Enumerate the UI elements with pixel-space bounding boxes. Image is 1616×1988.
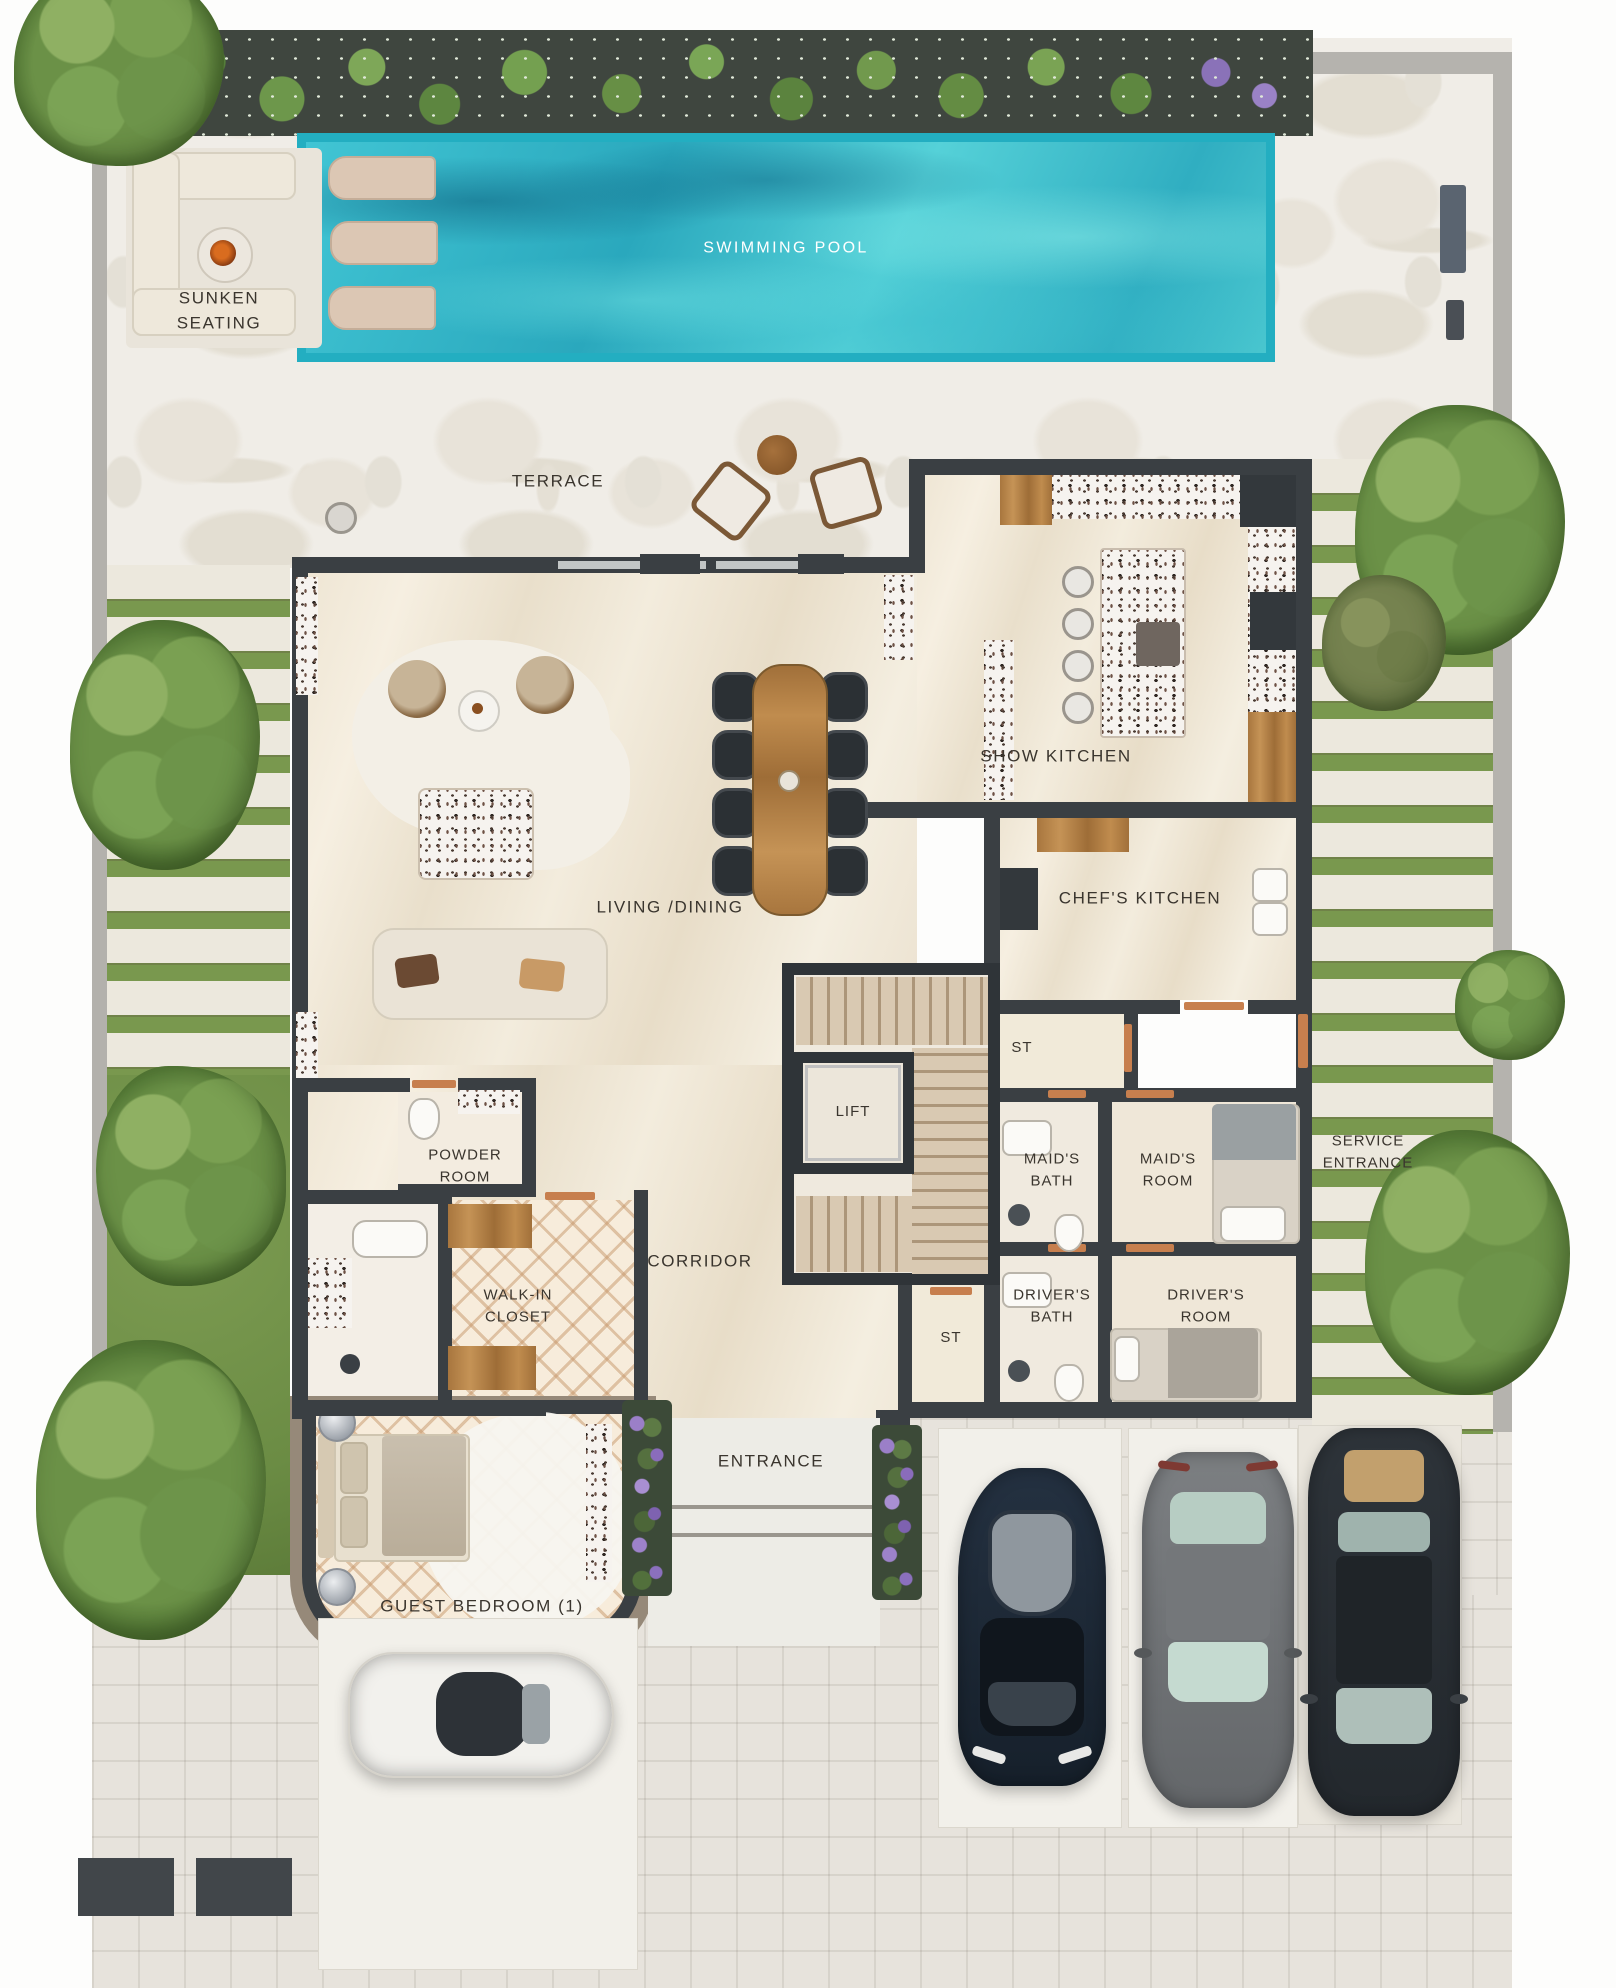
- bar-stool: [1062, 608, 1094, 640]
- door-post: [798, 554, 844, 574]
- outdoor-shower: [1440, 185, 1466, 273]
- maids-bed-blanket: [1212, 1104, 1296, 1160]
- car-windshield: [1336, 1688, 1432, 1744]
- entrance-step: [660, 1505, 872, 1509]
- label-storage-1: ST: [1011, 1037, 1032, 1059]
- car-roof: [1166, 1546, 1270, 1640]
- pool-lounger: [328, 156, 436, 200]
- label-sunken-seating: SUNKEN SEATING: [159, 286, 279, 335]
- kitchen-cabinet-wood: [1248, 712, 1296, 802]
- wall-panel-marble: [984, 640, 1014, 800]
- pool-lounger: [330, 221, 438, 265]
- maids-bath-shower: [1008, 1204, 1030, 1226]
- label-walk-in-closet: WALK-IN CLOSET: [468, 1284, 568, 1328]
- guest-bed-pillow: [340, 1496, 368, 1548]
- guest-bed-pillow: [340, 1442, 368, 1494]
- paver-mat: [78, 1858, 174, 1916]
- st1-door: [1124, 1024, 1132, 1072]
- car-headlight: [971, 1745, 1006, 1765]
- drivers-bed-blanket: [1168, 1328, 1258, 1398]
- fire-pit-flame: [210, 240, 236, 266]
- kitchen-top-cabinet-wood: [1000, 475, 1052, 525]
- outdoor-bench: [1446, 300, 1464, 340]
- label-drivers-room: DRIVER'S ROOM: [1156, 1284, 1256, 1328]
- label-powder-room: POWDER ROOM: [415, 1144, 515, 1188]
- car-sunroof-tan: [1344, 1450, 1424, 1502]
- bar-stool: [1062, 692, 1094, 724]
- car-windshield: [988, 1682, 1076, 1726]
- guest-bath-tub: [352, 1220, 428, 1258]
- bar-stool: [1062, 566, 1094, 598]
- wall-right: [1296, 459, 1312, 1418]
- tree: [1455, 950, 1565, 1060]
- label-lift: LIFT: [836, 1101, 871, 1123]
- entrance-step: [660, 1533, 872, 1537]
- car-dark: [1308, 1428, 1460, 1816]
- label-maids-room: MAID'S ROOM: [1123, 1148, 1213, 1192]
- drivers-bed-pillow: [1114, 1336, 1140, 1382]
- sofa-pillow: [394, 953, 440, 989]
- coffee-table-marble: [418, 788, 534, 880]
- maids-bench: [1220, 1206, 1286, 1242]
- wall-powder-right: [522, 1078, 536, 1197]
- wall-kitchen-top: [909, 459, 1312, 475]
- chef-door: [1184, 1002, 1244, 1010]
- label-swimming-pool: SWIMMING POOL: [703, 236, 868, 259]
- car-mirror: [1450, 1694, 1468, 1704]
- powder-door: [412, 1080, 456, 1088]
- label-show-kitchen: SHOW KITCHEN: [980, 745, 1131, 770]
- label-drivers-bath: DRIVER'S BATH: [1002, 1284, 1102, 1328]
- terrace-round-table: [757, 435, 797, 475]
- car-mirror: [1134, 1648, 1152, 1658]
- guest-bed-blanket: [382, 1436, 466, 1556]
- stairs-bottom-flight: [796, 1196, 912, 1272]
- barrel-chair: [388, 660, 446, 718]
- wall-panel-marble: [884, 575, 914, 660]
- top-right-fence: [1313, 52, 1512, 74]
- car-taillight: [1246, 1460, 1279, 1472]
- kitchen-appliance: [1250, 592, 1296, 650]
- floor-plan: SWIMMING POOL SUNKEN SEATING TERRACE LIV…: [0, 0, 1616, 1988]
- wall-guestbath-top: [296, 1190, 452, 1204]
- label-chefs-kitchen: CHEF'S KITCHEN: [1059, 887, 1222, 912]
- car-rear-glass: [1170, 1492, 1266, 1544]
- paver-mat: [196, 1858, 292, 1916]
- chef-appliance: [1000, 868, 1038, 930]
- island-sink: [1136, 622, 1180, 666]
- drivers-bath-shower: [1008, 1360, 1030, 1382]
- wall-st2-left: [898, 1285, 912, 1415]
- car-windshield: [1168, 1642, 1268, 1702]
- car-rear-glass: [988, 1510, 1076, 1616]
- drivers-bath-toilet: [1054, 1364, 1084, 1402]
- coffee-cup: [472, 703, 483, 714]
- sofa-pillow: [519, 958, 566, 992]
- car-windshield: [522, 1684, 550, 1744]
- wall-panel-marble: [296, 577, 318, 695]
- wall-bedroom-top: [296, 1402, 546, 1416]
- label-service-entrance: SERVICE ENTRANCE: [1298, 1130, 1438, 1174]
- st2-door: [930, 1287, 972, 1295]
- kitchen-top-counter: [1052, 475, 1240, 519]
- pool-lounger: [328, 286, 436, 330]
- wall-service-bottom: [898, 1402, 1312, 1418]
- guest-bath-stool: [340, 1354, 360, 1374]
- label-guest-bedroom: GUEST BEDROOM (1): [380, 1595, 584, 1620]
- powder-sink-counter: [458, 1090, 520, 1114]
- drivers-room-door: [1126, 1244, 1174, 1252]
- entrance-planter-left: [622, 1400, 672, 1596]
- guest-bath-vanity: [308, 1258, 352, 1328]
- tree: [70, 620, 260, 870]
- car-mirror: [1284, 1648, 1302, 1658]
- car-taillight: [1158, 1460, 1191, 1472]
- guest-nightstand: [318, 1568, 356, 1606]
- wall-panel-marble: [296, 1012, 318, 1078]
- powder-toilet: [408, 1098, 440, 1140]
- car-white: [348, 1652, 614, 1778]
- maids-bath-toilet: [1054, 1214, 1084, 1252]
- label-terrace: TERRACE: [512, 470, 604, 495]
- wall-kitchen-joint: [909, 459, 925, 573]
- service-door: [1298, 1014, 1308, 1068]
- wall-closet-right: [634, 1190, 648, 1417]
- tree: [36, 1340, 266, 1640]
- maids-room-door: [1126, 1090, 1174, 1098]
- top-planter: [100, 30, 1313, 136]
- car-rear-glass: [1338, 1512, 1430, 1552]
- label-storage-2: ST: [940, 1327, 961, 1349]
- stairs-top-flight: [796, 977, 988, 1045]
- guest-bed-headboard: [318, 1434, 334, 1558]
- stairs-right-flight: [912, 1048, 988, 1274]
- bar-stool: [1062, 650, 1094, 682]
- label-corridor: CORRIDOR: [647, 1250, 752, 1275]
- label-maids-bath: MAID'S BATH: [1007, 1148, 1097, 1192]
- maids-bath-door: [1048, 1090, 1086, 1098]
- closet-wardrobe: [448, 1204, 532, 1248]
- chef-counter-wood: [1037, 818, 1129, 852]
- closet-wardrobe: [448, 1346, 536, 1390]
- car-cockpit: [436, 1672, 532, 1756]
- car-headlight: [1057, 1745, 1092, 1765]
- terrace-side-table: [325, 502, 357, 534]
- barrel-chair: [516, 656, 574, 714]
- guest-tv-console: [586, 1424, 612, 1582]
- table-centerpiece: [778, 770, 800, 792]
- car-gray: [1142, 1452, 1294, 1808]
- label-entrance: ENTRANCE: [718, 1450, 824, 1475]
- door-post: [640, 554, 700, 574]
- car-roof: [1336, 1556, 1432, 1684]
- car-navy: [958, 1468, 1106, 1786]
- kitchen-appliance: [1240, 475, 1296, 527]
- wall-chef-bottom: [1248, 1000, 1312, 1014]
- entrance-planter-right: [872, 1425, 922, 1600]
- chef-stove: [1252, 868, 1288, 902]
- wall-powder-top: [296, 1078, 410, 1092]
- palm-tree: [1322, 575, 1446, 711]
- label-living-dining: LIVING /DINING: [596, 896, 743, 921]
- closet-door: [545, 1192, 595, 1200]
- car-mirror: [1300, 1694, 1318, 1704]
- wall-chef-bottom: [984, 1000, 1180, 1014]
- chef-stove: [1252, 902, 1288, 936]
